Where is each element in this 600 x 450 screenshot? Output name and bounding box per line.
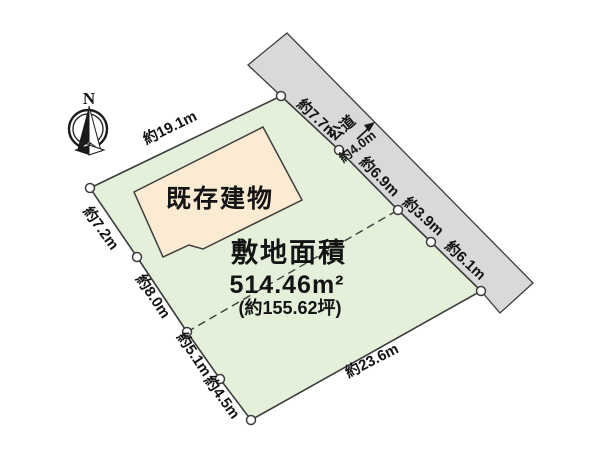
- site-area-title: 敷地面積: [231, 237, 347, 268]
- vertex-marker: [247, 416, 256, 425]
- site-area-tsubo: (約155.62坪): [238, 297, 341, 318]
- building-label: 既存建物: [166, 185, 274, 213]
- vertex-marker: [86, 184, 95, 193]
- vertex-marker: [477, 287, 486, 296]
- compass-north-label: N: [83, 89, 96, 108]
- site-area-value: 514.46m²: [229, 271, 344, 299]
- compass: N: [69, 89, 107, 155]
- site-area-block: 敷地面積 514.46m² (約155.62坪): [229, 237, 347, 318]
- vertex-marker: [427, 238, 436, 247]
- vertex-marker: [133, 253, 142, 262]
- land-plot-diagram: N 既存建物 敷地面積 514.46m² (約155.62坪) 約19.1m 約…: [0, 0, 600, 450]
- vertex-marker: [277, 92, 286, 101]
- plot-canvas: N 既存建物 敷地面積 514.46m² (約155.62坪) 約19.1m 約…: [0, 0, 600, 450]
